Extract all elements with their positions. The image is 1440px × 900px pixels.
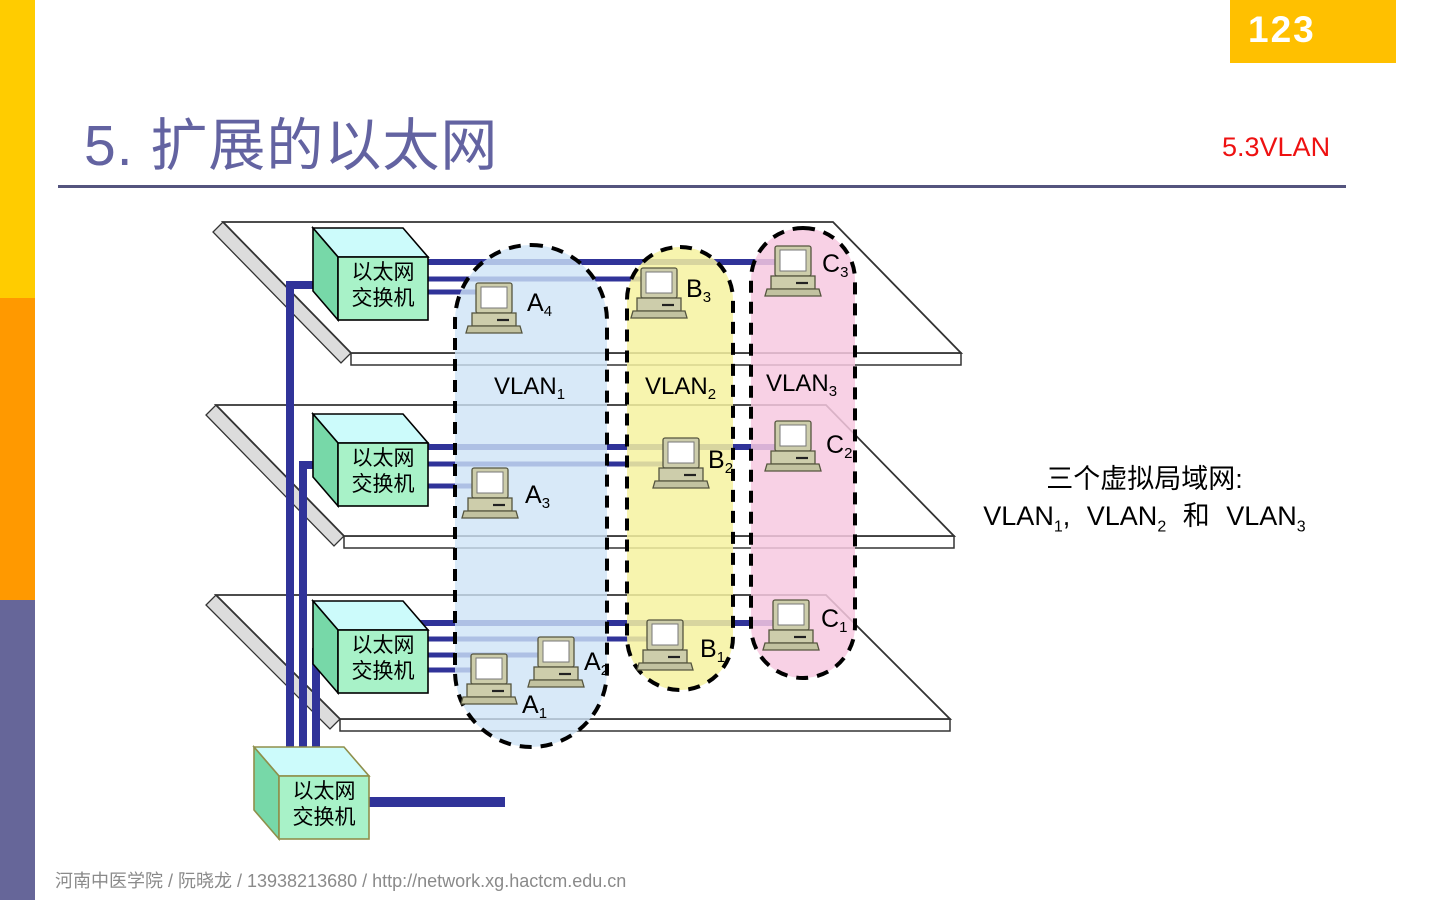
ethernet-switch-middle: 以太网 交换机 (313, 414, 428, 506)
vlan1-label: VLAN1 (494, 373, 565, 403)
ethernet-switch-basement: 以太网 交换机 (254, 747, 369, 839)
switch-label-line1: 以太网 (352, 261, 415, 284)
switch-label-line1: 以太网 (352, 634, 415, 657)
vlan3-label: VLAN3 (766, 370, 837, 400)
switch-label-line1: 以太网 (293, 780, 356, 803)
vlan2-label: VLAN2 (645, 373, 716, 403)
ethernet-switch-top: 以太网 交换机 (313, 228, 428, 320)
switch-label-line2: 交换机 (352, 287, 415, 310)
switch-label-line2: 交换机 (293, 806, 356, 829)
switch-label-line2: 交换机 (352, 473, 415, 496)
vlan-network-diagram: A4 B3 C3 A3 B2 C2 A2 A1 B1 C1 VLAN1 VLAN… (0, 0, 1440, 900)
ethernet-switch-bottom: 以太网 交换机 (313, 601, 428, 693)
switch-label-line2: 交换机 (352, 660, 415, 683)
switch-label-line1: 以太网 (352, 447, 415, 470)
